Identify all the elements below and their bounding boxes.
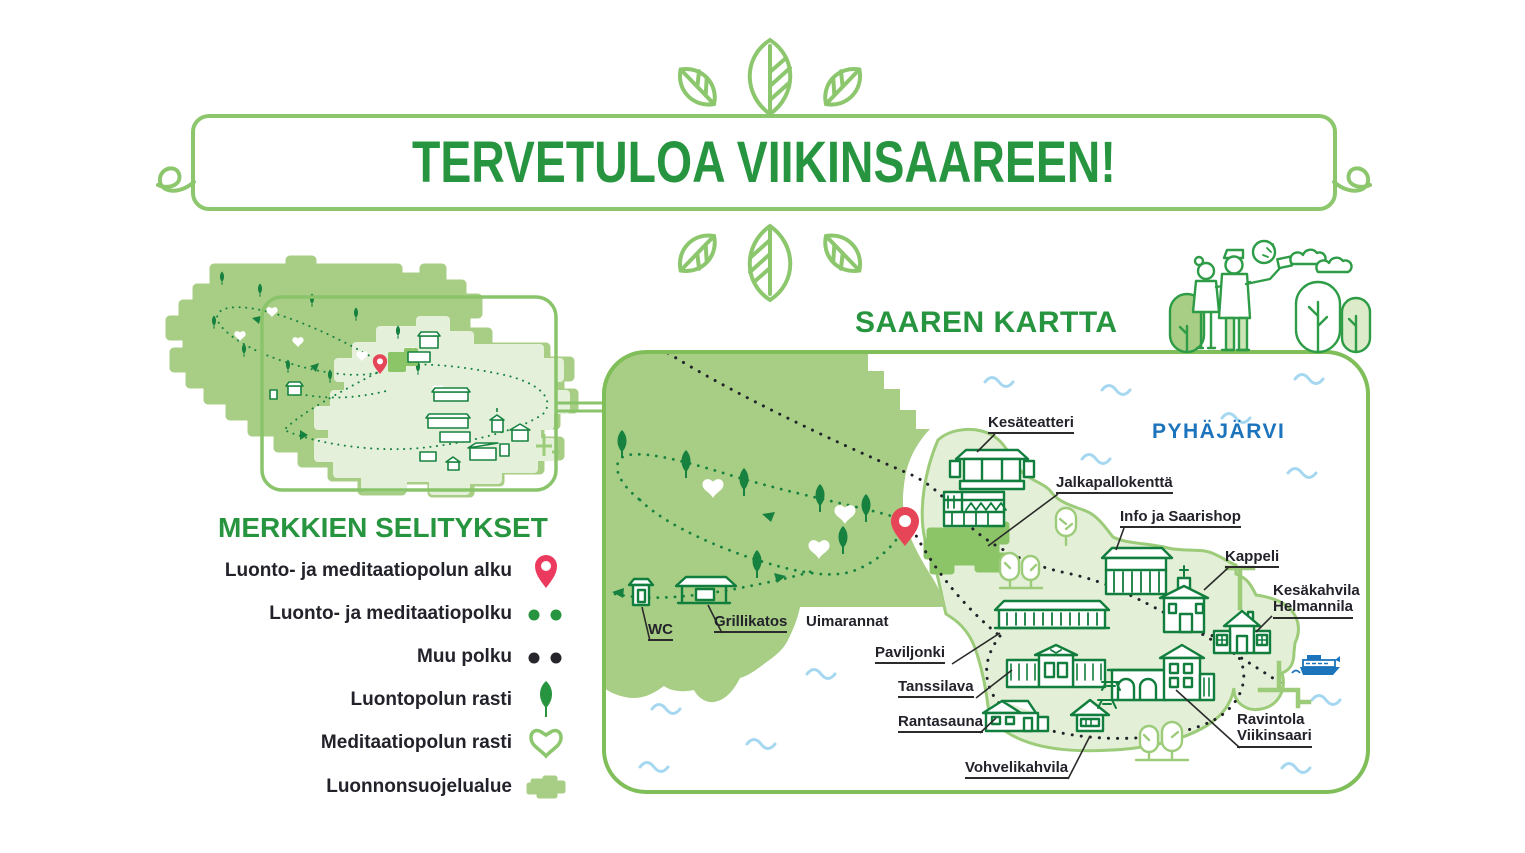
map-label-kappeli: Kappeli [1225,549,1279,568]
football-field [927,525,1006,571]
map-label-grillikatos: Grillikatos [714,614,787,633]
map-label-wc: WC [648,622,673,641]
overview-island-developed [318,320,566,491]
overview-map [170,260,604,493]
map-label-uimarannat: Uimarannat [806,614,889,629]
leaf-icon [524,681,568,717]
legend-item-trailhead: Luonto- ja meditaatiopolun alku [200,554,512,588]
legend-item-nature-checkpoint: Luontopolun rasti [200,683,512,717]
leaf-trio-bottom-icon [671,226,869,300]
selfie-people-illustration [1170,241,1370,352]
black-dots-icon [524,640,568,676]
map-label-jalkapallokentta: Jalkapallokenttä [1056,475,1173,494]
map-label-ravintola: Ravintola Viikinsaari [1237,712,1312,748]
map-label-tanssilava: Tanssilava [898,679,974,698]
lake-name-label: PYHÄJÄRVI [1152,420,1285,444]
nature-reserve-patch-icon [524,770,568,806]
leaf-trio-icon [671,40,869,114]
info-saarishop-building [1102,548,1172,594]
map-label-vohvelikahvila: Vohvelikahvila [965,760,1068,779]
banner-left-curl-icon [158,168,194,190]
cloud-icon [1316,258,1351,272]
banner-right-curl-icon [1334,168,1370,190]
legend-label: Muu polku [417,646,512,668]
legend-item-nature-reserve: Luonnonsuojelualue [200,770,512,804]
paviljonki-building [995,601,1109,628]
legend-item-meditation-checkpoint: Meditaatiopolun rasti [200,726,512,760]
map-title: SAAREN KARTTA [855,306,1118,340]
legend-title: MERKKIEN SELITYKSET [218,512,548,544]
legend-label: Meditaatiopolun rasti [321,732,512,754]
green-dots-icon [524,597,568,633]
map-label-helmannila: Kesäkahvila Helmannila [1273,583,1360,619]
wc-building [629,579,653,605]
legend-label: Luontopolun rasti [351,689,512,711]
map-label-paviljonki: Paviljonki [875,645,945,664]
ferry-icon [1292,655,1340,675]
pin-icon [524,553,568,589]
legend-label: Luonnonsuojelualue [326,776,512,798]
legend-item-nature-trail: Luonto- ja meditaatiopolku [200,597,512,631]
title-banner: TERVETULOA VIIKINSAAREEN! [193,116,1335,209]
page-title: TERVETULOA VIIKINSAAREEN! [412,129,1116,196]
map-label-kesateatteri: Kesäteatteri [988,415,1074,434]
map-label-info-saarishop: Info ja Saarishop [1120,509,1241,528]
map-label-rantasauna: Rantasauna [898,714,983,733]
legend-item-other-path: Muu polku [200,640,512,674]
infographic-page: { "banner": { "title": "TERVETULOA VIIKI… [0,0,1525,853]
heart-icon [524,725,568,761]
legend-label: Luonto- ja meditaatiopolku [269,603,512,625]
legend-label: Luonto- ja meditaatiopolun alku [225,560,512,582]
